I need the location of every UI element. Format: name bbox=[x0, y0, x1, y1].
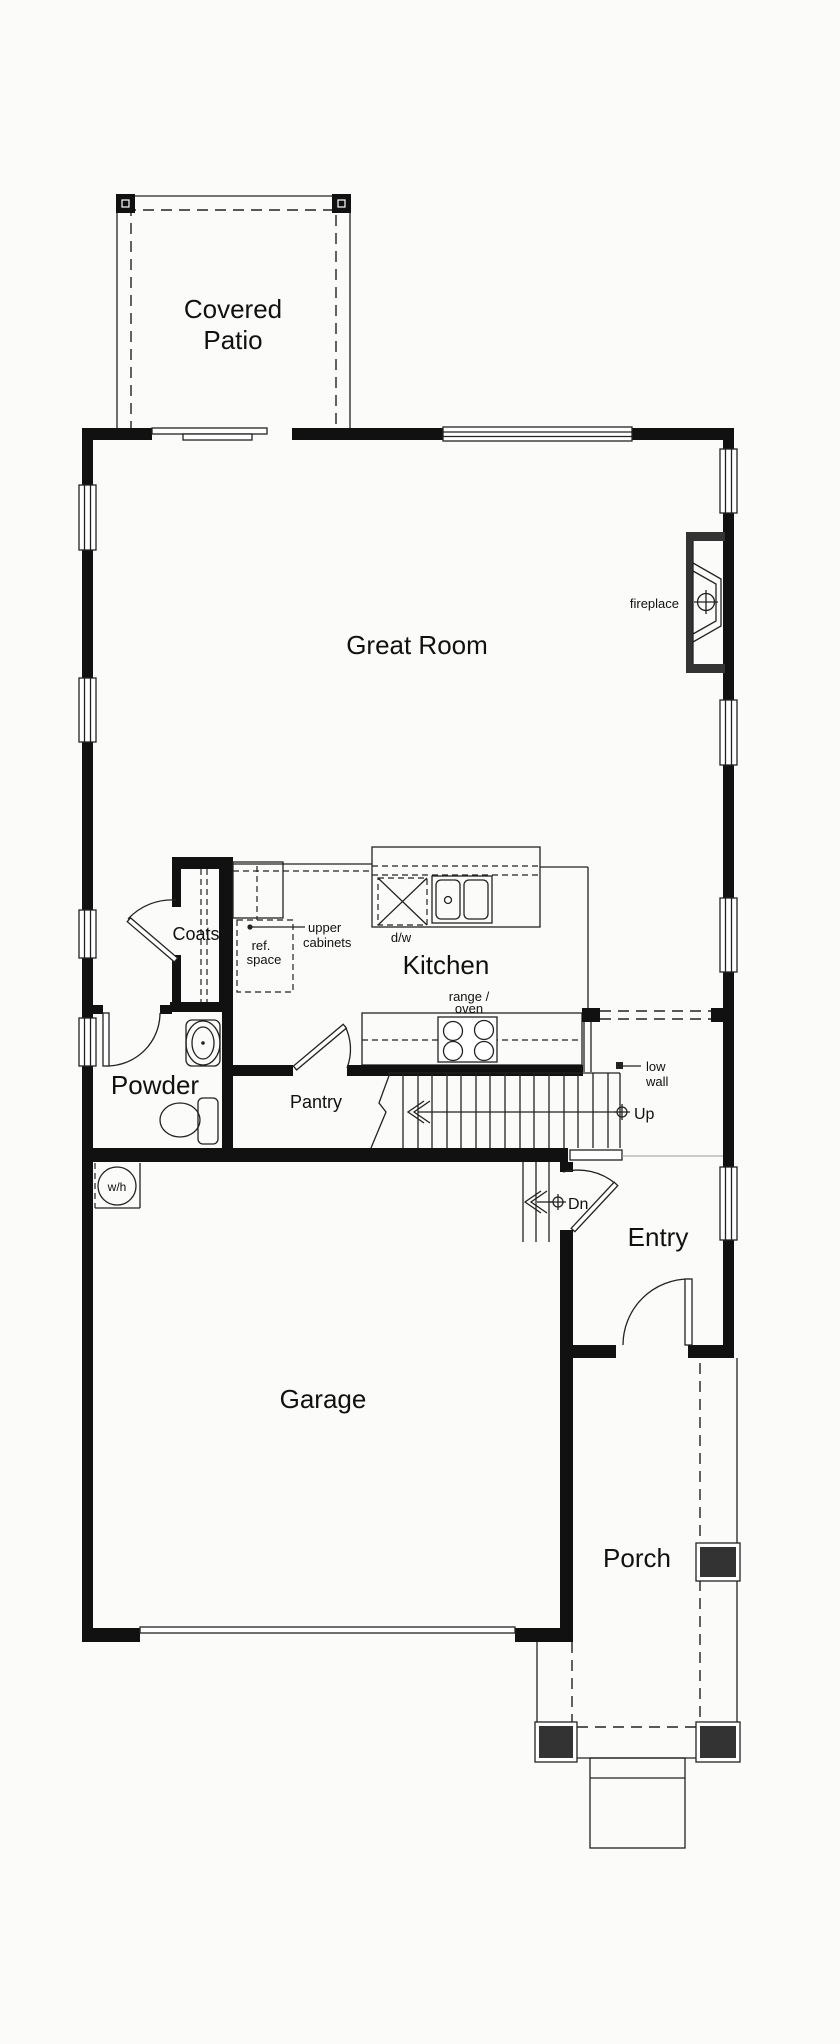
coats-right-wall bbox=[219, 857, 233, 1012]
entry-left-wall bbox=[560, 1230, 573, 1358]
entry-bottom-wall-left bbox=[560, 1345, 616, 1358]
porch-post-upper-right bbox=[696, 1543, 740, 1581]
garage-label: Garage bbox=[280, 1384, 367, 1414]
coats-left-wall-lower bbox=[172, 955, 181, 1002]
covered-patio-label-line1: Covered bbox=[184, 294, 282, 324]
upper-cabinets-leader-dot bbox=[247, 924, 252, 929]
garage-right-wall bbox=[560, 1358, 573, 1642]
powder-door-leaf bbox=[103, 1013, 109, 1066]
garage-bottom-wall-right bbox=[515, 1628, 573, 1642]
dn-label: Dn bbox=[568, 1196, 588, 1213]
fireplace-label: fireplace bbox=[630, 596, 679, 611]
low-wall-label-line1: low bbox=[646, 1059, 666, 1074]
great-room-label: Great Room bbox=[346, 630, 488, 660]
porch-post-lower-right bbox=[696, 1722, 740, 1762]
water-heater-label: w/h bbox=[107, 1180, 127, 1194]
entry-label: Entry bbox=[628, 1222, 689, 1252]
powder-right-wall bbox=[222, 1012, 233, 1160]
garage-top-wall bbox=[82, 1148, 568, 1162]
patio-post-left bbox=[116, 194, 135, 213]
top-wall-mid bbox=[292, 428, 443, 440]
floor-plan-drawing: Covered Patio Great Room fireplace Coats… bbox=[0, 0, 840, 2044]
pantry-label: Pantry bbox=[290, 1092, 342, 1112]
garage-door bbox=[140, 1627, 515, 1633]
up-label: Up bbox=[634, 1106, 655, 1123]
ref-space-label-line2: space bbox=[247, 952, 282, 967]
low-wall-label-line2: wall bbox=[645, 1074, 669, 1089]
covered-patio-label-line2: Patio bbox=[203, 325, 262, 355]
stair-opening-bar bbox=[570, 1150, 622, 1160]
ref-space-label-line1: ref. bbox=[252, 938, 271, 953]
kitchen-label: Kitchen bbox=[403, 950, 490, 980]
powder-top-wall-right bbox=[160, 1005, 172, 1014]
porch-post-lower-left bbox=[535, 1722, 577, 1762]
top-wall-left bbox=[82, 428, 152, 440]
entry-bottom-wall-right bbox=[688, 1345, 734, 1358]
patio-post-right bbox=[332, 194, 351, 213]
range-oven bbox=[438, 1017, 497, 1062]
powder-label: Powder bbox=[111, 1070, 199, 1100]
coats-label: Coats bbox=[172, 924, 219, 944]
garage-bottom-wall-left bbox=[82, 1628, 140, 1642]
entry-sidelite-window bbox=[720, 1167, 737, 1240]
dishwasher-label: d/w bbox=[391, 930, 412, 945]
floor-plan-page: Covered Patio Great Room fireplace Coats… bbox=[0, 0, 840, 2044]
great-room-top-window bbox=[443, 427, 632, 441]
kitchen-stair-wall bbox=[347, 1065, 583, 1076]
top-wall-right bbox=[632, 428, 734, 440]
porch-label: Porch bbox=[603, 1543, 671, 1573]
sliding-door-panel-2 bbox=[183, 434, 252, 440]
front-door-leaf bbox=[685, 1279, 692, 1345]
coats-bottom-wall bbox=[170, 1002, 233, 1012]
pantry-top-wall bbox=[232, 1065, 293, 1076]
upper-cabinets-label-line1: upper bbox=[308, 920, 342, 935]
fireplace-frame-left bbox=[686, 532, 693, 673]
range-oven-label-line2: oven bbox=[455, 1001, 483, 1016]
powder-top-wall-left bbox=[93, 1005, 103, 1014]
upper-cabinets-label-line2: cabinets bbox=[303, 935, 352, 950]
sliding-door-panel-1 bbox=[152, 428, 267, 434]
